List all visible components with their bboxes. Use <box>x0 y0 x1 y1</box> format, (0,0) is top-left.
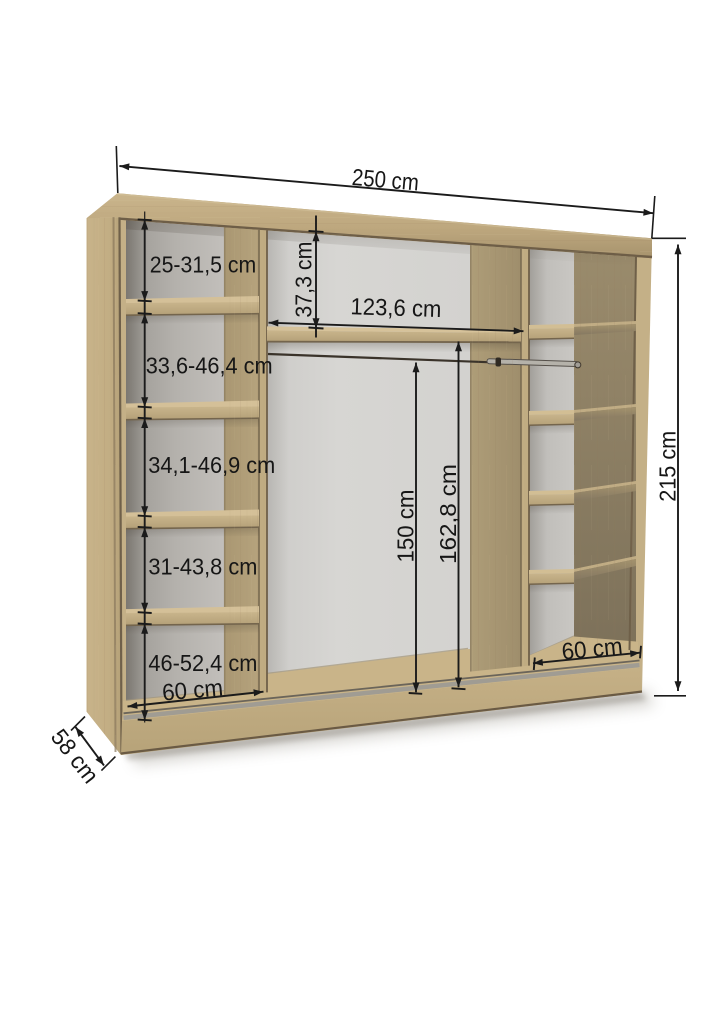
svg-text:31-43,8 cm: 31-43,8 cm <box>148 554 257 580</box>
svg-text:162,8 cm: 162,8 cm <box>435 464 461 564</box>
svg-text:33,6-46,4 cm: 33,6-46,4 cm <box>146 352 273 378</box>
svg-text:37,3 cm: 37,3 cm <box>290 242 316 318</box>
svg-text:215 cm: 215 cm <box>654 431 680 502</box>
svg-text:34,1-46,9 cm: 34,1-46,9 cm <box>148 452 275 478</box>
svg-text:25-31,5 cm: 25-31,5 cm <box>150 251 257 277</box>
svg-text:123,6 cm: 123,6 cm <box>350 293 442 322</box>
svg-text:150 cm: 150 cm <box>392 490 418 563</box>
svg-text:46-52,4 cm: 46-52,4 cm <box>148 650 257 676</box>
svg-text:60 cm: 60 cm <box>161 674 224 705</box>
